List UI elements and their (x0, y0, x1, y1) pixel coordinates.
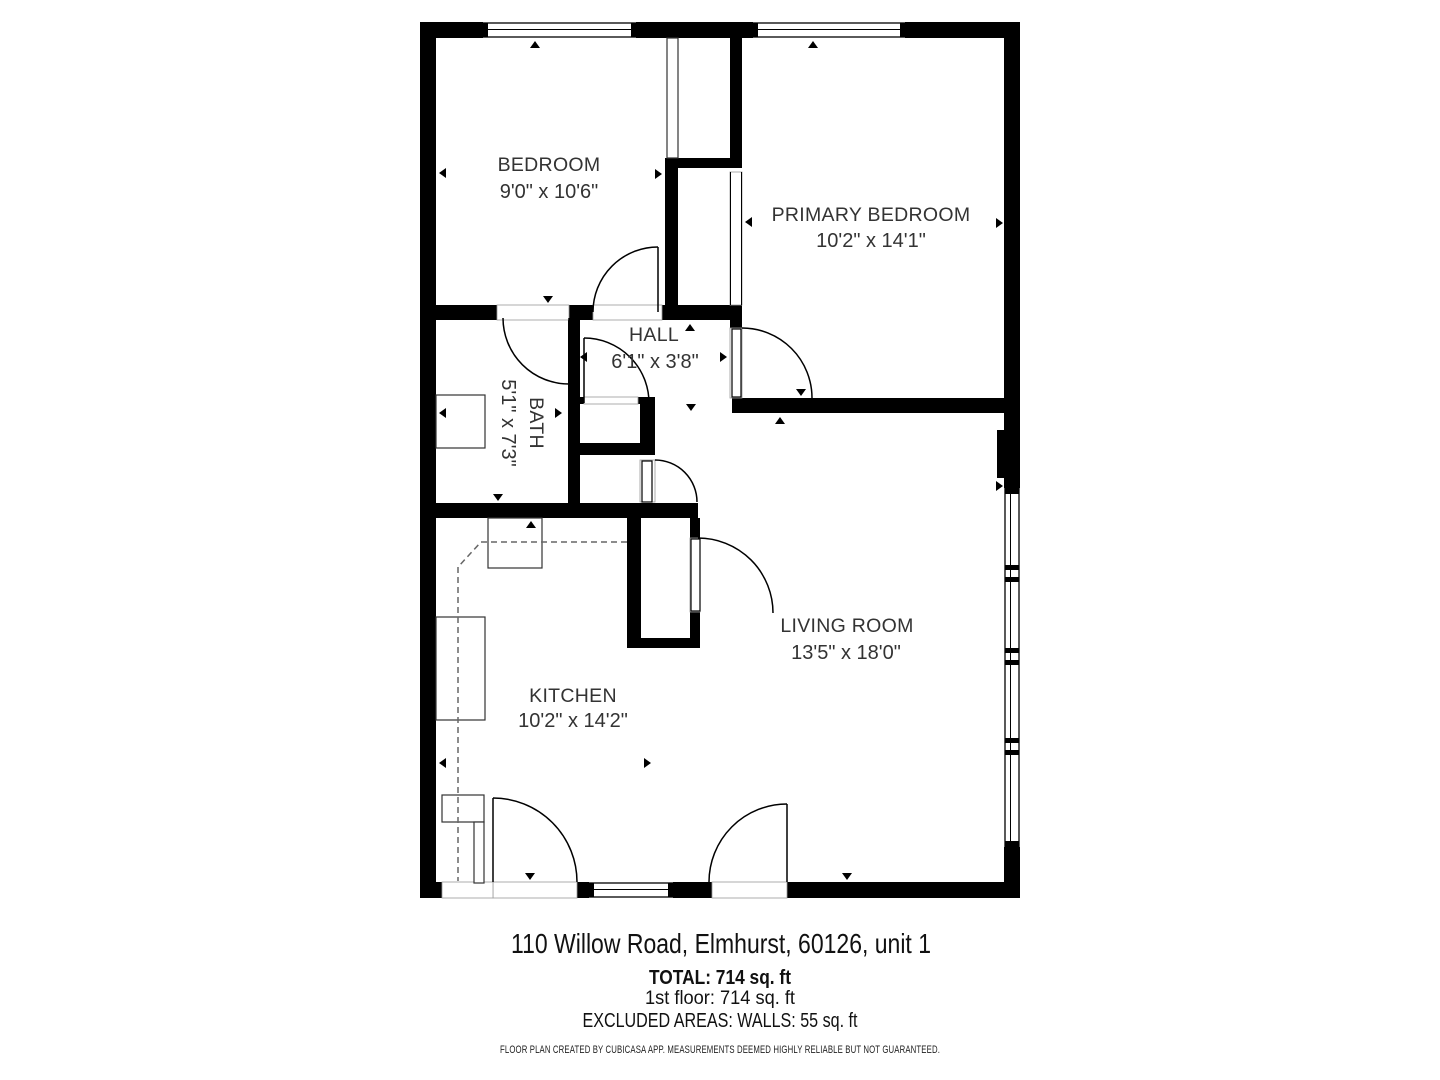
living-room-label: LIVING ROOM (780, 615, 913, 637)
first-floor-area-line: 1st floor: 714 sq. ft (645, 987, 796, 1009)
floor-plan-svg: BEDROOM 9'0" x 10'6" PRIMARY BEDROOM 10'… (0, 0, 1440, 1080)
excluded-areas-line: EXCLUDED AREAS: WALLS: 55 sq. ft (583, 1010, 858, 1032)
primary-bedroom-dimensions: 10'2" x 14'1" (816, 230, 926, 252)
total-area-line: TOTAL: 714 sq. ft (649, 967, 791, 989)
living-room-dimensions: 13'5" x 18'0" (791, 642, 901, 664)
disclaimer-line: FLOOR PLAN CREATED BY CUBICASA APP. MEAS… (500, 1044, 940, 1056)
floor-plan-page: BEDROOM 9'0" x 10'6" PRIMARY BEDROOM 10'… (0, 0, 1440, 1080)
hall-label: HALL (629, 324, 679, 346)
kitchen-appliance (436, 617, 485, 720)
bath-vanity (436, 395, 485, 448)
address-line: 110 Willow Road, Elmhurst, 60126, unit 1 (511, 928, 931, 959)
bath-dimensions: 5'1" x 7'3" (497, 379, 519, 466)
bedroom-dimensions: 9'0" x 10'6" (500, 181, 599, 203)
hall-dimensions: 6'1" x 3'8" (611, 351, 698, 373)
primary-bedroom-label: PRIMARY BEDROOM (772, 204, 971, 226)
between-bedrooms-void (667, 38, 678, 158)
bedroom-label: BEDROOM (498, 154, 601, 176)
kitchen-cabinet-side (474, 822, 484, 883)
bath-label: BATH (525, 397, 547, 449)
kitchen-cabinet-lower (442, 795, 484, 822)
footer: 110 Willow Road, Elmhurst, 60126, unit 1… (500, 928, 940, 1056)
kitchen-label: KITCHEN (529, 685, 617, 707)
kitchen-dimensions: 10'2" x 14'2" (518, 710, 628, 732)
